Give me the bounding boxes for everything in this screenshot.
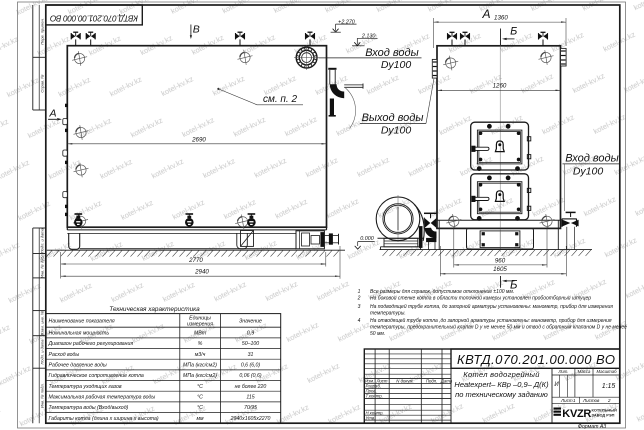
svg-text:KVZR: KVZR xyxy=(562,408,591,420)
svg-text:2770: 2770 xyxy=(188,257,203,264)
svg-text:°С: °С xyxy=(197,394,203,400)
svg-text:Масштаб: Масштаб xyxy=(596,369,617,374)
svg-text:Расход воды: Расход воды xyxy=(49,352,80,358)
svg-text:Инв. № дубл.: Инв. № дубл. xyxy=(40,253,45,278)
svg-text:°С: °С xyxy=(197,405,203,411)
svg-text:3: 3 xyxy=(358,304,361,310)
svg-text:измерения: измерения xyxy=(187,322,213,328)
svg-text:Вход воды: Вход воды xyxy=(365,47,418,59)
svg-text:И: И xyxy=(554,382,559,388)
svg-text:Подп.: Подп. xyxy=(426,379,437,384)
svg-text:0,06 (0,6): 0,06 (0,6) xyxy=(239,373,261,379)
svg-text:Подп. и дата: Подп. и дата xyxy=(40,339,45,365)
svg-text:Наименование показателя: Наименование показателя xyxy=(49,319,115,325)
svg-text:МВт: МВт xyxy=(194,330,207,336)
svg-text:Утв.: Утв. xyxy=(366,416,376,421)
svg-text:На боковой стенке котла в обла: На боковой стенке котла в области топочн… xyxy=(370,294,591,301)
svg-text:Лит.: Лит. xyxy=(557,369,568,374)
svg-text:31: 31 xyxy=(248,352,254,358)
svg-text:4: 4 xyxy=(358,318,361,324)
svg-text:А: А xyxy=(48,107,56,119)
svg-text:0,9: 0,9 xyxy=(247,330,254,336)
svg-text:Формат А3: Формат А3 xyxy=(578,424,606,430)
svg-text:1260: 1260 xyxy=(493,83,507,90)
svg-text:Справ. №: Справ. № xyxy=(40,74,45,93)
svg-text:Диапазон рабочего регулировани: Диапазон рабочего регулирования xyxy=(48,341,134,347)
svg-text:Т.контр.: Т.контр. xyxy=(366,394,383,399)
svg-text:м3/ч: м3/ч xyxy=(195,352,206,358)
svg-text:Взам. инв. №: Взам. инв. № xyxy=(40,310,45,335)
svg-text:Dy100: Dy100 xyxy=(381,59,412,71)
svg-text:2: 2 xyxy=(607,398,611,403)
svg-text:На подводящей трубе котла, д: На подводящей трубе котла, до запорной а… xyxy=(370,303,613,310)
svg-text:Номинальная мощность: Номинальная мощность xyxy=(49,330,110,336)
svg-text:Температура уходящих газов: Температура уходящих газов xyxy=(49,384,122,390)
svg-text:°С: °С xyxy=(197,384,203,390)
svg-text:Лист: Лист xyxy=(560,398,573,403)
svg-text:А: А xyxy=(481,7,490,21)
svg-text:Все размеры для справок, допус: Все размеры для справок, допустимое откл… xyxy=(370,289,514,295)
svg-text:не более 220: не более 220 xyxy=(235,384,267,390)
svg-text:70/95: 70/95 xyxy=(244,405,257,411)
svg-text:115: 115 xyxy=(246,394,254,400)
svg-text:2940х1605х2270: 2940х1605х2270 xyxy=(230,416,271,422)
svg-text:Листов: Листов xyxy=(582,398,600,403)
svg-text:Dy100: Dy100 xyxy=(381,125,412,137)
svg-text:50–100: 50–100 xyxy=(242,341,259,347)
svg-text:Heatexpert– КВр –0,9– Д(К): Heatexpert– КВр –0,9– Д(К) xyxy=(454,380,549,389)
svg-text:МПа (кгс/см2): МПа (кгс/см2) xyxy=(183,373,217,379)
svg-text:50 мм.: 50 мм. xyxy=(370,331,385,337)
svg-text:Температура воды (Вход/выход): Температура воды (Вход/выход) xyxy=(49,405,129,411)
svg-text:ЗАВОД РЭП: ЗАВОД РЭП xyxy=(592,413,615,418)
svg-text:960: 960 xyxy=(495,257,506,264)
svg-text:Гидравлическое сопротивление к: Гидравлическое сопротивление котла xyxy=(49,373,144,379)
svg-text:Перв. примен.: Перв. примен. xyxy=(40,18,45,45)
svg-text:Подп. и дата: Подп. и дата xyxy=(40,227,45,253)
svg-text:см. п. 2: см. п. 2 xyxy=(263,94,297,105)
svg-text:0,6 (6,0): 0,6 (6,0) xyxy=(241,362,261,368)
svg-text:Вход воды: Вход воды xyxy=(565,153,618,165)
svg-text:температуры, предохранительный: температуры, предохранительный клапан D … xyxy=(370,324,627,331)
svg-text:Рабочее давление воды: Рабочее давление воды xyxy=(49,362,107,368)
svg-text:Масса: Масса xyxy=(578,369,591,374)
svg-text:1: 1 xyxy=(358,289,361,295)
svg-text:Инв. № подл.: Инв. № подл. xyxy=(40,383,45,408)
svg-text:Значение: Значение xyxy=(239,319,262,325)
svg-text:2: 2 xyxy=(357,295,361,301)
svg-text:Максимальная рабочая температу: Максимальная рабочая температура воды xyxy=(49,394,156,400)
svg-text:МПа (кгс/см2): МПа (кгс/см2) xyxy=(183,362,217,368)
svg-text:КВТД.070.201.00.000 ВО: КВТД.070.201.00.000 ВО xyxy=(49,13,138,22)
svg-text:температуры.: температуры. xyxy=(370,310,406,316)
svg-text:2690: 2690 xyxy=(191,136,206,143)
svg-text:КВТД.070.201.00.000 ВО: КВТД.070.201.00.000 ВО xyxy=(457,352,615,367)
svg-text:1605: 1605 xyxy=(493,266,507,273)
svg-text:В: В xyxy=(193,24,200,36)
svg-text:N докум.: N докум. xyxy=(396,379,413,384)
svg-text:Dy100: Dy100 xyxy=(573,165,604,177)
svg-text:Техническая характеристика: Техническая характеристика xyxy=(109,306,200,313)
svg-text:Котел водогрейный: Котел водогрейный xyxy=(463,370,540,379)
svg-text:Выход воды: Выход воды xyxy=(362,112,424,124)
svg-text:Габариты котла (длина х ширина: Габариты котла (длина х ширина х высота) xyxy=(49,416,159,422)
svg-text:по техническому заданию: по техническому заданию xyxy=(455,390,548,399)
svg-text:%: % xyxy=(198,341,203,347)
svg-text:мм: мм xyxy=(196,416,204,422)
svg-text:1360: 1360 xyxy=(494,15,508,22)
svg-text:2940: 2940 xyxy=(194,269,209,276)
svg-text:1:15: 1:15 xyxy=(602,383,616,390)
svg-text:Б: Б xyxy=(510,26,517,38)
svg-text:На отводящей трубе котла ,до з: На отводящей трубе котла ,до запорной ар… xyxy=(370,317,612,324)
